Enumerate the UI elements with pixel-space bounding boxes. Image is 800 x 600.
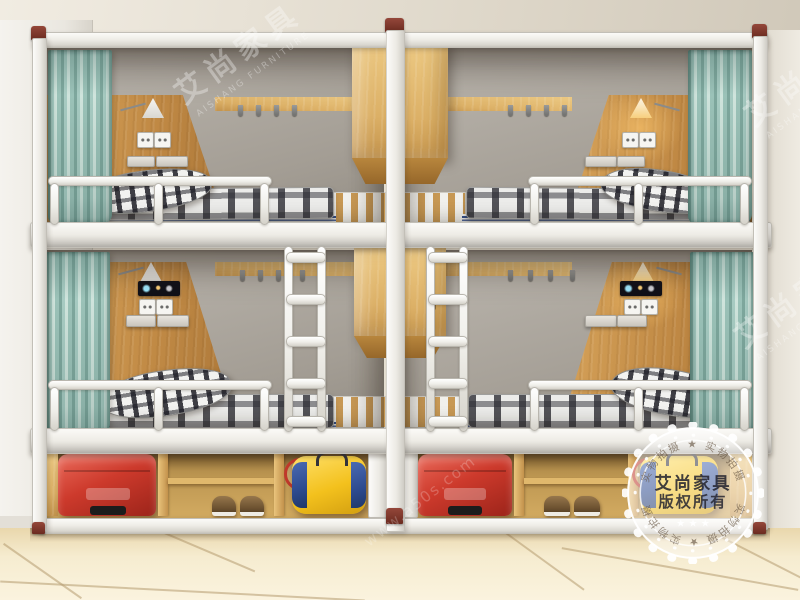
duffel-end-panel bbox=[351, 462, 366, 508]
ladder-rung bbox=[428, 378, 468, 389]
guardrail-upper-right bbox=[528, 176, 752, 224]
shoe bbox=[212, 496, 236, 516]
guardrail-tube bbox=[154, 183, 163, 225]
red-suitcase bbox=[58, 454, 156, 516]
ladder-rung bbox=[286, 294, 326, 305]
control-panel bbox=[138, 281, 180, 296]
power-outlet bbox=[639, 132, 656, 148]
storage-side-panel bbox=[368, 450, 388, 518]
shoe-shelf bbox=[524, 478, 628, 484]
guardrail-tube bbox=[530, 387, 539, 431]
control-panel bbox=[620, 281, 662, 296]
suitcase-plate bbox=[444, 488, 486, 500]
coat-hook bbox=[508, 270, 513, 281]
suitcase-wheel-bar bbox=[90, 506, 126, 515]
ladder-rung bbox=[286, 378, 326, 389]
coat-hook bbox=[526, 105, 531, 116]
stamp-stars: ★ ★ ★ bbox=[676, 518, 710, 529]
suitcase-seam bbox=[64, 470, 150, 472]
storage-divider bbox=[514, 452, 524, 516]
coat-hook bbox=[548, 270, 553, 281]
ladder-rung bbox=[428, 336, 468, 347]
wall-shelf bbox=[157, 315, 189, 327]
guardrail-tube bbox=[154, 387, 163, 431]
coat-hook bbox=[256, 105, 261, 116]
post-foot bbox=[32, 522, 45, 534]
shoe bbox=[574, 496, 600, 516]
power-outlet bbox=[622, 132, 639, 148]
suitcase-seam bbox=[424, 470, 506, 472]
coat-hook bbox=[238, 105, 243, 116]
coat-hook bbox=[508, 105, 513, 116]
guardrail-tube bbox=[530, 183, 539, 225]
stamp-title: 艾尚家具 bbox=[654, 473, 731, 494]
duffel-end-panel bbox=[292, 462, 307, 508]
wall-shelf bbox=[617, 315, 647, 327]
stamp-star-right: ★ bbox=[730, 513, 737, 523]
ladder-rung bbox=[286, 252, 326, 263]
product-photo-scene: 艾尚家具 AISHANG FURNITURE 艾尚家具 AISHANG FURN… bbox=[0, 0, 800, 600]
storage-divider bbox=[158, 452, 168, 516]
power-outlet bbox=[156, 299, 173, 315]
ladder-rung bbox=[428, 416, 468, 427]
coat-hook bbox=[528, 270, 533, 281]
power-outlet bbox=[154, 132, 171, 148]
ladder-right bbox=[426, 246, 468, 432]
post-foot bbox=[386, 508, 403, 524]
coat-hook bbox=[276, 270, 281, 281]
guardrail-tube bbox=[50, 183, 59, 225]
stamp-subtitle: 版权所有 bbox=[659, 493, 728, 511]
tile-grout-line bbox=[3, 543, 82, 599]
wall-shelf bbox=[585, 315, 617, 327]
coat-hook bbox=[562, 105, 567, 116]
power-outlet bbox=[139, 299, 156, 315]
frame-post-center bbox=[386, 30, 405, 532]
coat-hook bbox=[544, 105, 549, 116]
coat-hook bbox=[292, 105, 297, 116]
guardrail-tube bbox=[50, 387, 59, 431]
guardrail-tube bbox=[260, 387, 269, 431]
suitcase-wheel-bar bbox=[448, 506, 482, 515]
red-suitcase bbox=[418, 454, 512, 516]
ladder-rung bbox=[286, 416, 326, 427]
bed-slat-deck bbox=[402, 192, 466, 224]
wall-shelf bbox=[127, 156, 155, 167]
ladder-left bbox=[284, 246, 326, 432]
storage-unit-left bbox=[46, 450, 386, 518]
coat-hook bbox=[570, 270, 575, 281]
frame-post-left bbox=[32, 38, 47, 532]
guardrail-lower-left bbox=[48, 380, 272, 430]
copyright-stamp-graphic: 实物拍摄 ★ 实物拍摄 实物拍摄 ★ 实物拍摄 艾尚家具 版权所有 ★ ★ ★ … bbox=[622, 422, 764, 564]
coat-hook bbox=[274, 105, 279, 116]
guardrail-tube bbox=[740, 183, 749, 225]
copyright-stamp: 实物拍摄 ★ 实物拍摄 实物拍摄 ★ 实物拍摄 艾尚家具 版权所有 ★ ★ ★ … bbox=[622, 422, 764, 564]
guardrail-tube bbox=[634, 183, 643, 225]
power-outlet bbox=[641, 299, 658, 315]
ladder-rung bbox=[428, 252, 468, 263]
wall-shelf bbox=[617, 156, 645, 167]
tile-grout-line bbox=[0, 580, 365, 600]
ladder-rung bbox=[428, 294, 468, 305]
wall-shelf bbox=[156, 156, 188, 167]
coat-hook bbox=[258, 270, 263, 281]
stamp-star-left: ★ bbox=[649, 513, 656, 523]
suitcase-plate bbox=[86, 488, 130, 500]
storage-side-panel bbox=[46, 450, 58, 516]
wall-shelf bbox=[126, 315, 156, 327]
power-outlet bbox=[624, 299, 641, 315]
guardrail-upper-left bbox=[48, 176, 272, 224]
yellow-duffel-bag bbox=[292, 456, 366, 514]
shoe bbox=[240, 496, 264, 516]
coat-hook bbox=[240, 270, 245, 281]
wall-shelf bbox=[585, 156, 617, 167]
storage-divider bbox=[274, 452, 284, 516]
guardrail-tube bbox=[260, 183, 269, 225]
shoe bbox=[544, 496, 570, 516]
shoe-shelf bbox=[168, 478, 274, 484]
ladder-rung bbox=[286, 336, 326, 347]
power-outlet bbox=[137, 132, 154, 148]
